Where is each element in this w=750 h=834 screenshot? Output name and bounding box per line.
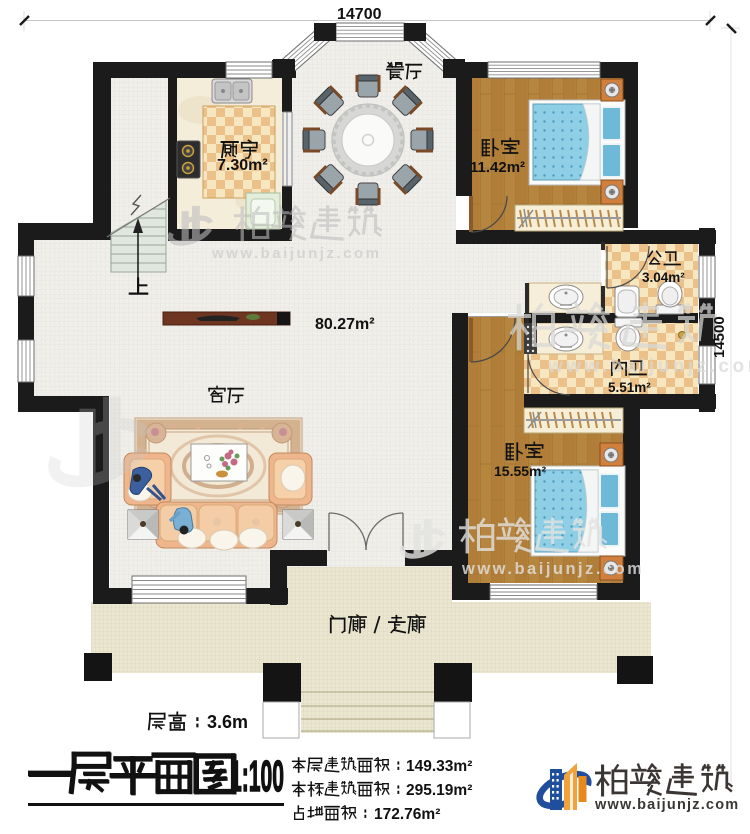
svg-text:3.6m: 3.6m bbox=[207, 712, 248, 732]
svg-text:7.30m²: 7.30m² bbox=[217, 157, 268, 174]
svg-text:14500: 14500 bbox=[711, 316, 728, 358]
svg-text:295.19m²: 295.19m² bbox=[406, 782, 472, 799]
svg-text:149.33m²: 149.33m² bbox=[406, 758, 472, 775]
svg-text:5.51m²: 5.51m² bbox=[608, 380, 651, 395]
svg-text:www.baijunjz.com: www.baijunjz.com bbox=[461, 560, 644, 578]
svg-text:11.42m²: 11.42m² bbox=[470, 159, 525, 176]
svg-text:14700: 14700 bbox=[337, 6, 382, 23]
svg-text:80.27m²: 80.27m² bbox=[315, 316, 375, 333]
svg-text:15.55m²: 15.55m² bbox=[494, 463, 546, 479]
svg-text:172.76m²: 172.76m² bbox=[374, 806, 440, 823]
svg-text:1:100: 1:100 bbox=[230, 753, 284, 801]
svg-text:www.baijunjz.com: www.baijunjz.com bbox=[211, 245, 381, 262]
svg-text:www.baijunjz.com: www.baijunjz.com bbox=[547, 356, 750, 377]
svg-text:www.baijunjz.com: www.baijunjz.com bbox=[594, 797, 739, 813]
svg-text:3.04m²: 3.04m² bbox=[642, 270, 685, 285]
